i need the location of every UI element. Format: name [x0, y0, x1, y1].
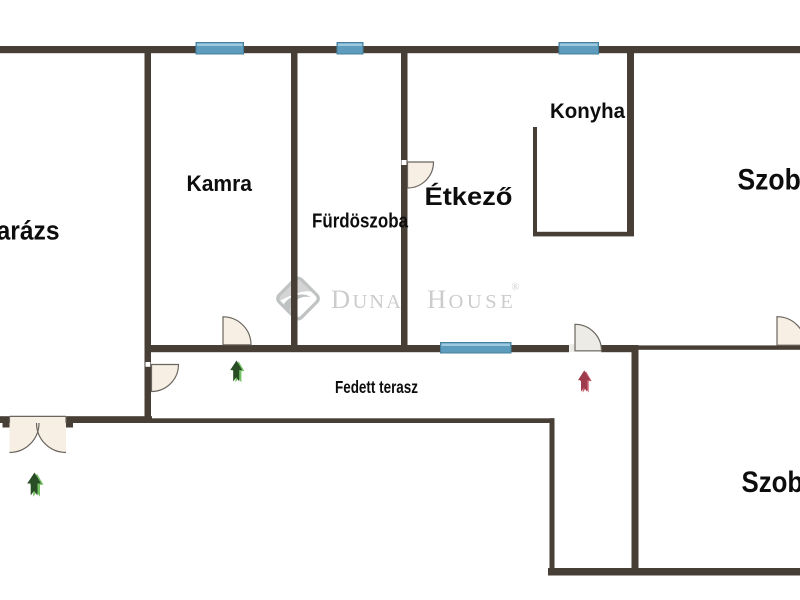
svg-text:Szoba: Szoba: [742, 466, 800, 499]
svg-text:Kamra: Kamra: [187, 171, 253, 196]
svg-text:Étkező: Étkező: [425, 182, 513, 211]
svg-text:Szoba: Szoba: [738, 164, 800, 197]
svg-text:Konyha: Konyha: [550, 100, 625, 123]
svg-text:Garázs: Garázs: [0, 216, 60, 246]
svg-text:Fedett terasz: Fedett terasz: [335, 377, 418, 397]
svg-text:Fürdöszoba: Fürdöszoba: [312, 211, 409, 233]
